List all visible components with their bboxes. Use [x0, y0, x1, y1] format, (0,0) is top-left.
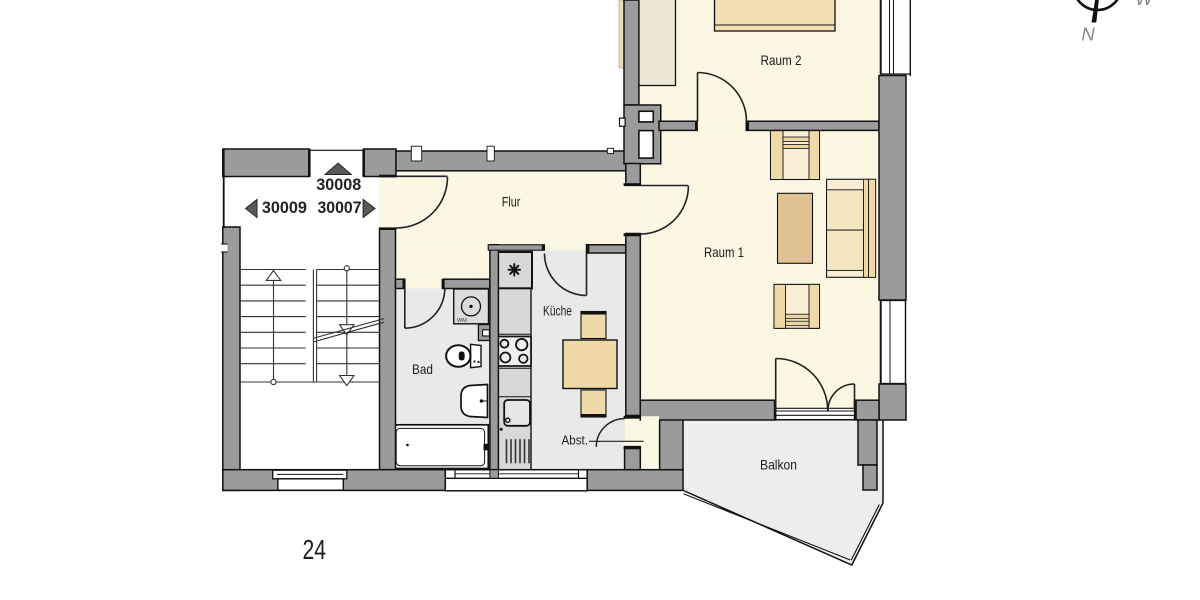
svg-text:N: N [1081, 24, 1095, 45]
svg-text:Raum 2: Raum 2 [761, 52, 802, 68]
svg-text:30007: 30007 [318, 198, 362, 217]
svg-text:Küche: Küche [543, 303, 572, 319]
svg-text:24: 24 [303, 534, 327, 565]
svg-text:30009: 30009 [262, 198, 307, 217]
svg-text:Flur: Flur [502, 194, 521, 210]
svg-text:Raum 1: Raum 1 [704, 244, 744, 260]
svg-text:Balkon: Balkon [760, 457, 797, 473]
svg-text:WM: WM [457, 318, 467, 324]
svg-text:W: W [1135, 0, 1154, 9]
svg-text:30008: 30008 [316, 175, 361, 194]
svg-text:Bad: Bad [412, 361, 433, 377]
svg-text:Abst.: Abst. [562, 433, 589, 448]
